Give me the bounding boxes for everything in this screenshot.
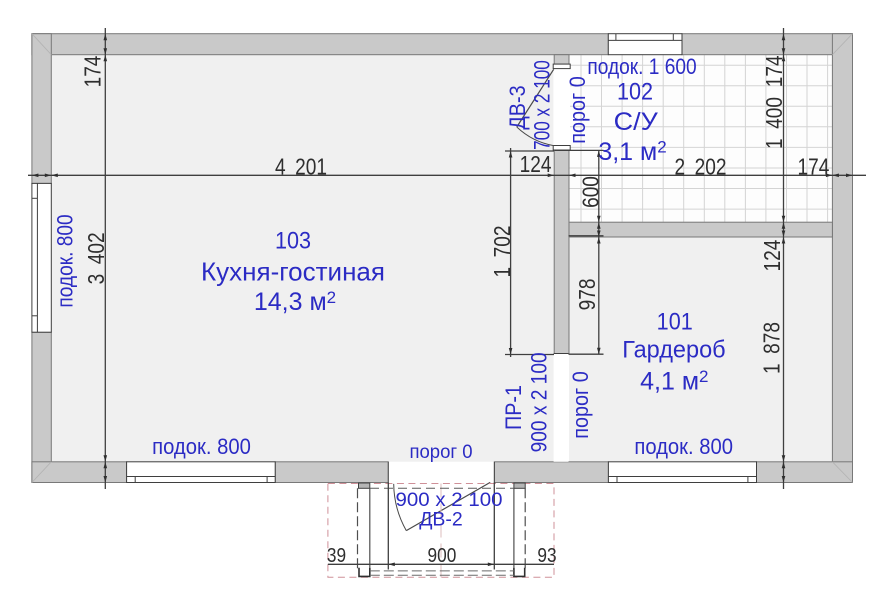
svg-text:124: 124 [761,239,786,271]
svg-text:4,1 м2: 4,1 м2 [640,367,708,395]
svg-text:174: 174 [81,55,106,87]
svg-text:600: 600 [579,176,604,208]
svg-text:4 201: 4 201 [275,155,327,180]
svg-text:14,3 м2: 14,3 м2 [254,288,336,316]
svg-text:подок. 1 600: подок. 1 600 [587,55,696,80]
svg-text:ПР-1: ПР-1 [502,385,526,430]
svg-text:978: 978 [575,278,600,310]
svg-text:124: 124 [520,152,552,177]
svg-text:174: 174 [762,55,787,87]
svg-text:700 x 2 100: 700 x 2 100 [531,60,556,150]
svg-text:ДВ-3: ДВ-3 [506,85,530,129]
svg-text:900: 900 [428,544,457,567]
svg-text:101: 101 [657,307,693,334]
svg-text:1 878: 1 878 [760,322,785,374]
svg-text:С/У: С/У [614,107,659,136]
svg-text:103: 103 [275,226,311,253]
svg-text:3,1 м2: 3,1 м2 [598,138,666,166]
svg-text:1 400: 1 400 [762,97,787,149]
svg-text:2 202: 2 202 [675,155,727,180]
svg-text:подок. 800: подок. 800 [53,214,78,307]
svg-text:подок. 800: подок. 800 [634,435,733,459]
svg-text:3 402: 3 402 [84,232,109,284]
svg-text:1 702: 1 702 [490,226,515,278]
svg-text:Гардероб: Гардероб [622,336,725,364]
svg-text:ДВ-2: ДВ-2 [419,509,463,531]
svg-text:39: 39 [327,544,346,567]
svg-text:900 x 2 100: 900 x 2 100 [396,489,503,510]
svg-text:Кухня-гостиная: Кухня-гостиная [201,257,385,287]
svg-text:900 x 2 100: 900 x 2 100 [527,352,552,452]
svg-text:порог 0: порог 0 [409,442,472,464]
svg-text:174: 174 [797,155,829,180]
svg-text:порог 0: порог 0 [566,76,590,143]
svg-text:порог 0: порог 0 [569,371,593,438]
svg-text:93: 93 [537,544,556,567]
svg-text:102: 102 [617,77,653,104]
svg-text:подок. 800: подок. 800 [152,435,251,459]
